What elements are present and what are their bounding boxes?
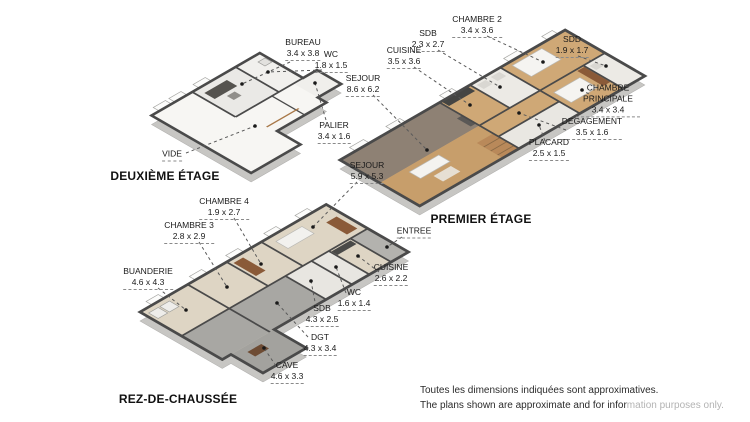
room-dims: 4.6 x 3.3 bbox=[271, 371, 304, 384]
room-name: VIDE bbox=[162, 148, 182, 161]
room-dims: 3.4 x 3.6 bbox=[452, 25, 502, 38]
room-label-chambre2: CHAMBRE 2 3.4 x 3.6 bbox=[452, 14, 502, 38]
room-label-cuisine0: CUISINE 2.6 x 2.2 bbox=[374, 262, 408, 286]
room-label-wc0: WC 1.6 x 1.4 bbox=[338, 287, 371, 311]
room-dims: 1.9 x 1.7 bbox=[556, 45, 589, 58]
room-label-dgt: DGT 4.3 x 3.4 bbox=[304, 332, 337, 356]
room-dims: 2.8 x 2.9 bbox=[164, 231, 214, 244]
room-name: SDB bbox=[306, 303, 339, 314]
room-name: BUANDERIE bbox=[123, 266, 173, 277]
floorplan-canvas: BUREAU 3.4 x 3.8 WC 1.8 x 1.5 PALIER 3.4… bbox=[0, 0, 750, 422]
disclaimer-faded-text: mation purposes only. bbox=[627, 400, 724, 411]
room-name: CHAMBRE 3 bbox=[164, 220, 214, 231]
room-name: DGT bbox=[304, 332, 337, 343]
room-label-palier: PALIER 3.4 x 1.6 bbox=[318, 120, 351, 144]
room-name: WC bbox=[338, 287, 371, 298]
floorplan-drawing bbox=[0, 0, 750, 422]
room-name: SDB bbox=[412, 28, 445, 39]
room-name: ENTREE bbox=[397, 225, 431, 238]
room-name: CHAMBRE PRINCIPALE bbox=[576, 82, 640, 104]
disclaimer-line-fr: Toutes les dimensions indiquées sont app… bbox=[420, 383, 724, 398]
room-dims: 3.4 x 1.6 bbox=[318, 131, 351, 144]
room-label-cave: CAVE 4.6 x 3.3 bbox=[271, 360, 304, 384]
room-dims: 1.9 x 2.7 bbox=[199, 207, 249, 220]
room-label-placard: PLACARD 2.5 x 1.5 bbox=[529, 137, 569, 161]
floor-title-deuxieme: DEUXIÈME ÉTAGE bbox=[110, 169, 219, 183]
room-label-sejour0: SEJOUR 5.9 x 5.3 bbox=[350, 160, 384, 184]
room-name: BUREAU bbox=[285, 37, 320, 48]
room-dims: 8.6 x 6.2 bbox=[346, 84, 380, 97]
room-label-degagement: DEGAGEMENT 3.5 x 1.6 bbox=[562, 116, 622, 140]
room-label-chambre4: CHAMBRE 4 1.9 x 2.7 bbox=[199, 196, 249, 220]
room-label-buanderie: BUANDERIE 4.6 x 4.3 bbox=[123, 266, 173, 290]
room-label-cuisine1: CUISINE 3.5 x 3.6 bbox=[387, 45, 421, 69]
room-name: DEGAGEMENT bbox=[562, 116, 622, 127]
room-label-wc2: WC 1.8 x 1.5 bbox=[315, 49, 348, 73]
room-name: CUISINE bbox=[387, 45, 421, 56]
room-label-sdb0: SDB 4.3 x 2.5 bbox=[306, 303, 339, 327]
room-dims: 4.6 x 4.3 bbox=[123, 277, 173, 290]
room-label-chambre-principale: CHAMBRE PRINCIPALE 3.4 x 3.4 bbox=[576, 82, 640, 117]
room-dims: 4.3 x 2.5 bbox=[306, 314, 339, 327]
room-name: CUISINE bbox=[374, 262, 408, 273]
room-dims: 3.5 x 1.6 bbox=[562, 127, 622, 140]
room-dims: 4.3 x 3.4 bbox=[304, 343, 337, 356]
floor-title-premier: PREMIER ÉTAGE bbox=[430, 212, 531, 226]
room-dims: 5.9 x 5.3 bbox=[350, 171, 384, 184]
room-name: CHAMBRE 2 bbox=[452, 14, 502, 25]
room-name: SEJOUR bbox=[350, 160, 384, 171]
room-name: SDD bbox=[556, 34, 589, 45]
room-name: PALIER bbox=[318, 120, 351, 131]
room-label-chambre3: CHAMBRE 3 2.8 x 2.9 bbox=[164, 220, 214, 244]
room-dims: 1.8 x 1.5 bbox=[315, 60, 348, 73]
room-dims: 1.6 x 1.4 bbox=[338, 298, 371, 311]
room-name: CAVE bbox=[271, 360, 304, 371]
room-label-entree: ENTREE bbox=[397, 225, 431, 238]
room-dims: 2.6 x 2.2 bbox=[374, 273, 408, 286]
room-dims: 3.5 x 3.6 bbox=[387, 56, 421, 69]
room-name: SEJOUR bbox=[346, 73, 380, 84]
disclaimer-line-en: The plans shown are approximate and for … bbox=[420, 398, 724, 413]
room-name: CHAMBRE 4 bbox=[199, 196, 249, 207]
room-label-sdd: SDD 1.9 x 1.7 bbox=[556, 34, 589, 58]
room-dims: 2.5 x 1.5 bbox=[529, 148, 569, 161]
room-label-vide: VIDE bbox=[162, 148, 182, 161]
room-name: WC bbox=[315, 49, 348, 60]
floor-title-rdc: REZ-DE-CHAUSSÉE bbox=[119, 392, 237, 406]
room-name: PLACARD bbox=[529, 137, 569, 148]
disclaimer-text: Toutes les dimensions indiquées sont app… bbox=[420, 383, 724, 413]
room-label-sejour1: SEJOUR 8.6 x 6.2 bbox=[346, 73, 380, 97]
